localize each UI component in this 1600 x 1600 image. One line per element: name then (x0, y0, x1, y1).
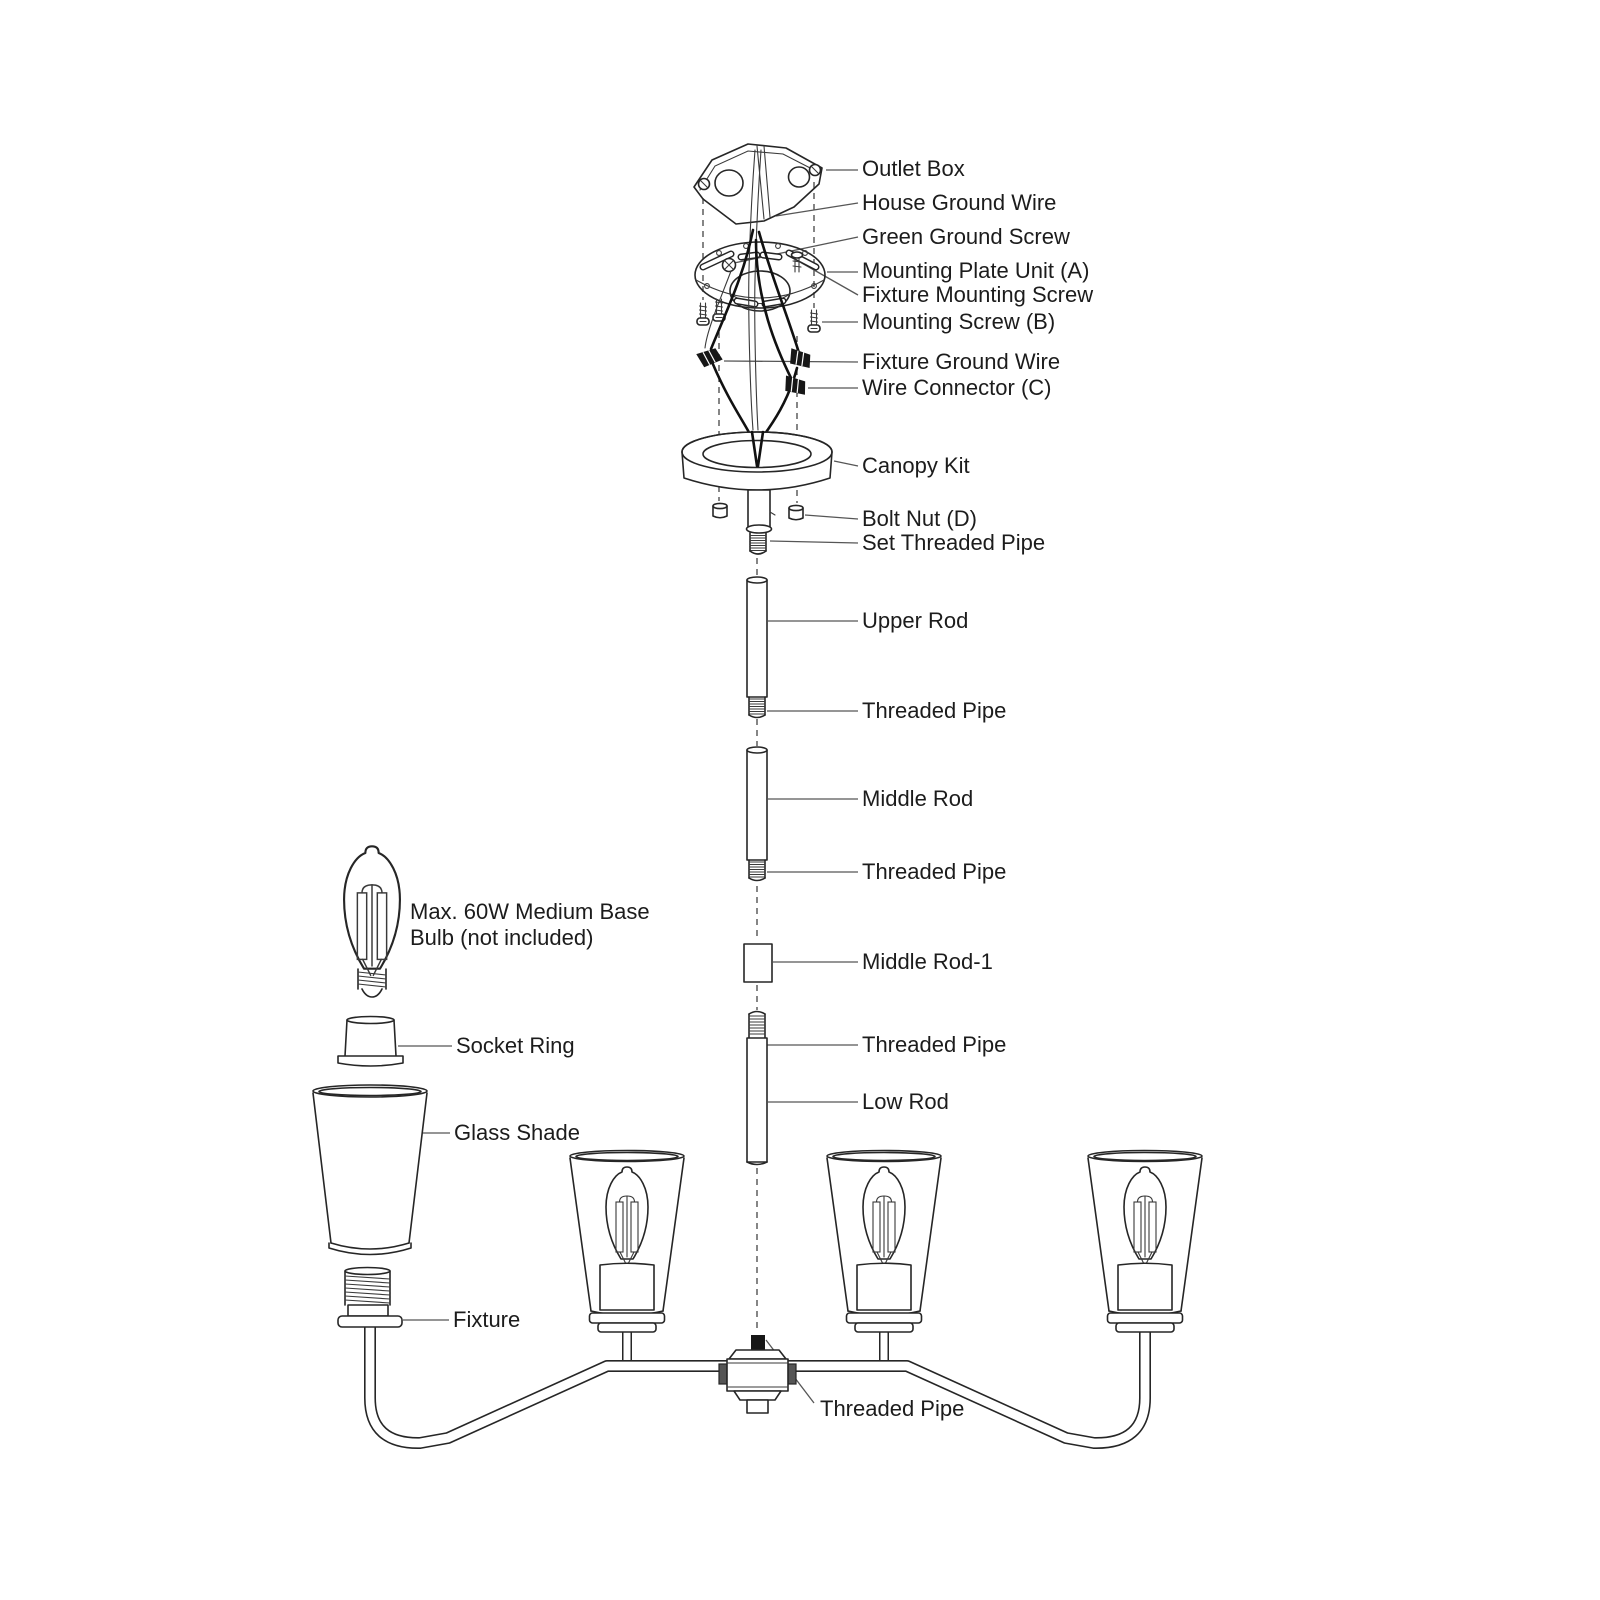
label-outlet-box: Outlet Box (862, 157, 965, 181)
green-ground-screw-drawing (723, 259, 736, 272)
low-rod-drawing (747, 1012, 767, 1165)
label-threaded-pipe-4: Threaded Pipe (820, 1397, 964, 1421)
wire-connector-c-drawing (782, 376, 808, 396)
fixture-mounting-screw-drawing (792, 252, 803, 272)
set-threaded-pipe-drawing (750, 533, 766, 554)
socket-ring-drawing (338, 1017, 403, 1067)
center-hub-drawing (719, 1335, 796, 1413)
label-fixture-mounting-screw: Fixture Mounting Screw (862, 283, 1093, 307)
fixture-socket-drawing (338, 1268, 402, 1328)
hub-threaded-pipe (751, 1335, 765, 1351)
canopy-kit-drawing (682, 432, 832, 533)
label-middle-rod: Middle Rod (862, 787, 973, 811)
fixture-flange (338, 1316, 402, 1327)
label-wire-connector-c: Wire Connector (C) (862, 376, 1051, 400)
label-middle-rod-1: Middle Rod-1 (862, 950, 993, 974)
label-house-ground-wire: House Ground Wire (862, 191, 1056, 215)
label-bulb-note: Max. 60W Medium Base Bulb (not included) (410, 899, 650, 951)
wire-connector-right-upper (787, 348, 813, 369)
label-upper-rod: Upper Rod (862, 609, 968, 633)
label-bulb-note-line2: Bulb (not included) (410, 925, 650, 951)
label-bolt-nut-d: Bolt Nut (D) (862, 507, 977, 531)
leader-lines (398, 170, 858, 1403)
diagram-line-art (0, 0, 1600, 1600)
label-set-threaded-pipe: Set Threaded Pipe (862, 531, 1045, 555)
label-threaded-pipe-3: Threaded Pipe (862, 1033, 1006, 1057)
label-socket-ring: Socket Ring (456, 1034, 575, 1058)
installation-diagram: Outlet Box House Ground Wire Green Groun… (0, 0, 1600, 1600)
glass-shade-drawing (313, 1085, 427, 1255)
label-low-rod: Low Rod (862, 1090, 949, 1114)
bulb-drawing (344, 846, 400, 997)
label-green-ground-screw: Green Ground Screw (862, 225, 1070, 249)
mounting-screw-b-drawing (808, 310, 820, 332)
shade-unit-2 (827, 1151, 941, 1333)
shade-unit-1 (570, 1151, 684, 1333)
shade-unit-3 (1088, 1151, 1202, 1333)
label-fixture-ground-wire: Fixture Ground Wire (862, 350, 1060, 374)
label-threaded-pipe-1: Threaded Pipe (862, 699, 1006, 723)
wires-drawing (696, 150, 813, 438)
mounting-screw-left-1 (697, 303, 709, 325)
label-glass-shade: Glass Shade (454, 1121, 580, 1145)
label-fixture: Fixture (453, 1308, 520, 1332)
label-bulb-note-line1: Max. 60W Medium Base (410, 899, 650, 925)
middle-rod-1-drawing (744, 944, 772, 982)
label-canopy-kit: Canopy Kit (862, 454, 970, 478)
upper-rod-drawing (747, 577, 767, 718)
wire-connector-left (696, 346, 723, 368)
label-threaded-pipe-2: Threaded Pipe (862, 860, 1006, 884)
middle-rod-drawing (747, 747, 767, 881)
label-mounting-screw-b: Mounting Screw (B) (862, 310, 1055, 334)
bolt-nut-left (713, 503, 727, 517)
label-mounting-plate-unit: Mounting Plate Unit (A) (862, 259, 1089, 283)
bolt-nut-right (789, 505, 803, 519)
